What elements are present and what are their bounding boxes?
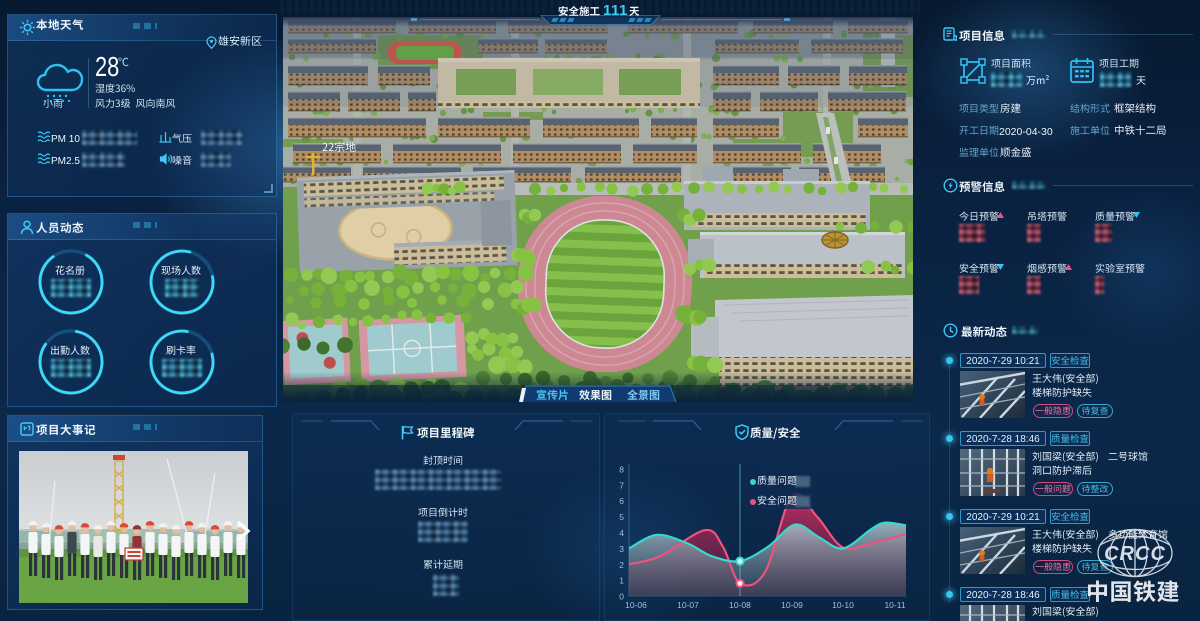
svg-text:6: 6 xyxy=(619,496,624,506)
svg-text:10-11: 10-11 xyxy=(884,600,905,610)
svg-text:10-10: 10-10 xyxy=(832,600,854,610)
svg-text:4: 4 xyxy=(619,528,624,538)
svg-text:0: 0 xyxy=(619,592,624,602)
svg-text:2: 2 xyxy=(619,560,624,570)
svg-text:8: 8 xyxy=(619,465,624,475)
svg-text:5: 5 xyxy=(619,512,624,522)
svg-text:1: 1 xyxy=(619,576,624,586)
svg-text:10-06: 10-06 xyxy=(625,600,647,610)
svg-text:10-07: 10-07 xyxy=(677,600,699,610)
svg-text:3: 3 xyxy=(619,544,624,554)
svg-text:10-09: 10-09 xyxy=(781,600,803,610)
svg-text:7: 7 xyxy=(619,480,624,490)
svg-text:10-08: 10-08 xyxy=(729,600,751,610)
